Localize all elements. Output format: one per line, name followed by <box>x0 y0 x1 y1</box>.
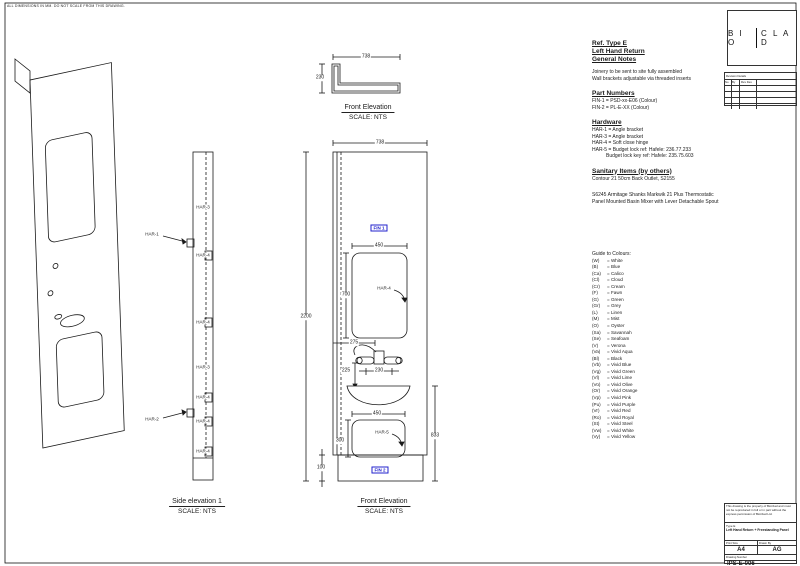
side-label-har: HAR-3 <box>196 205 210 210</box>
title-block: This drawing is the property of BioClad … <box>724 503 797 564</box>
front-dim-cutout2-height: 300 <box>335 438 345 444</box>
side-label-har: HAR-3 <box>196 365 210 370</box>
front-label-fin2: FIN 2 <box>371 467 388 474</box>
sanitary-item-1: Contour 21 50cm Back Outlet, S2155 <box>592 176 722 183</box>
revision-table: Revision Details No By Rev Des <box>724 72 797 106</box>
iso-cutout-bottom <box>56 331 104 409</box>
notes-column: Ref. Type E Left Hand Return General Not… <box>592 40 722 441</box>
side-leader-har2: HAR-2 <box>145 417 159 422</box>
front-label-har4: HAR-4 <box>377 286 391 291</box>
front-dim-cutout1-height: 700 <box>341 292 351 298</box>
side-label-har: HAR-4 <box>196 419 210 424</box>
side-label-har: HAR-4 <box>196 253 210 258</box>
title-type-desc: Left Hand Return + Freestanding Panel <box>726 528 795 532</box>
front-cutout-top <box>352 253 407 338</box>
revision-row <box>725 104 796 109</box>
front-tap <box>354 345 402 364</box>
front-elevation <box>303 140 438 487</box>
colour-list: (W)= White (B)= Blue (Ca)= Calico (Cl)= … <box>592 258 722 441</box>
part-numbers-heading: Part Numbers <box>592 90 722 98</box>
front-label-har5: HAR-5 <box>375 430 389 435</box>
iso-basin <box>60 313 84 329</box>
plan-view <box>319 54 400 93</box>
drawing-number-value: IPS-E-006 <box>725 561 796 566</box>
print-size-value: A4 <box>725 546 757 554</box>
hardware-item-5: Budget lock key ref: Hafele: 235.75.603 <box>606 153 722 160</box>
front-dim-basin-height: 833 <box>430 433 440 439</box>
title-block-disclaimer: This drawing is the property of BioClad … <box>725 504 796 523</box>
iso-cutout-top <box>45 131 95 243</box>
ref-type-heading: Ref. Type E <box>592 40 722 48</box>
revision-col-by: By <box>732 80 740 85</box>
logo-bio: B I O <box>728 29 752 47</box>
iso-return-flap <box>15 59 30 93</box>
drawn-by-value: AG <box>758 546 796 554</box>
side-label-har: HAR-4 <box>196 449 210 454</box>
part-number-2: FIN-2 = PL-E-XX (Colour) <box>592 105 722 112</box>
front-dim-plinth: 100 <box>316 465 326 471</box>
iso-tap-hole-1 <box>53 263 58 269</box>
front-dim-width: 738 <box>375 140 385 146</box>
revision-col-desc: Rev Des <box>740 80 757 85</box>
drawing-sheet: ALL DIMENSIONS IN MM. DO NOT SCALE FROM … <box>0 0 800 566</box>
title-block-type: Type E Left Hand Return + Freestanding P… <box>725 523 796 541</box>
front-dim-cutout2-width: 450 <box>372 411 382 417</box>
front-dim-tap-down: 225 <box>341 368 351 374</box>
logo-clad: C L A D <box>761 29 796 47</box>
side-elevation <box>163 152 213 480</box>
front-dim-tap-gap: 230 <box>374 368 384 374</box>
sanitary-heading: Sanitary Items (by others) <box>592 168 722 176</box>
side-panel-outline <box>193 152 213 480</box>
front-dim-cutout1-width: 450 <box>374 243 384 249</box>
front-cutout-bottom <box>352 420 405 457</box>
hardware-heading: Hardware <box>592 119 722 127</box>
side-label-har: HAR-4 <box>196 395 210 400</box>
general-note-2: Wall brackets adjustable via threaded in… <box>592 76 722 83</box>
plan-caption: Front Elevation SCALE: NTS <box>341 104 394 121</box>
front-label-fin1: FIN 1 <box>370 225 387 232</box>
revision-table-title: Revision Details <box>725 73 796 80</box>
iso-panel-face <box>30 63 124 448</box>
plan-dim-width: 738 <box>361 54 371 60</box>
bioclad-logo: B I O C L A D <box>727 10 797 66</box>
iso-tap-hole-2 <box>48 290 53 296</box>
colour-row: (Vy)= Vivid Yellow <box>592 434 722 441</box>
front-dim-height: 2200 <box>299 314 312 320</box>
print-size-cell: Print Size A4 <box>725 541 758 554</box>
side-leader-har1: HAR-1 <box>145 232 159 237</box>
sanitary-item-2: S6245 Armitage Shanks Markwik 21 Plus Th… <box>592 192 722 205</box>
front-caption: Front Elevation SCALE: NTS <box>357 498 410 515</box>
revision-col-no: No <box>725 80 732 85</box>
title-block-meta-row: Print Size A4 Drawn By AG <box>725 541 796 555</box>
plan-dim-depth: 230 <box>315 75 325 81</box>
side-label-har: HAR-4 <box>196 320 210 325</box>
front-dim-tap-offset: 275 <box>349 340 359 346</box>
ref-return-heading: Left Hand Return <box>592 48 722 56</box>
logo-divider <box>756 28 757 48</box>
front-basin <box>347 386 410 405</box>
drawn-by-cell: Drawn By AG <box>758 541 796 554</box>
plan-outline-outer <box>332 64 400 93</box>
general-notes-heading: General Notes <box>592 56 722 64</box>
plan-outline-inner <box>334 66 398 91</box>
side-caption: Side elevation 1 SCALE: NTS <box>169 498 225 515</box>
iso-small-oval <box>55 314 62 320</box>
dimensions-note: ALL DIMENSIONS IN MM. DO NOT SCALE FROM … <box>7 4 125 8</box>
iso-view <box>15 59 124 448</box>
